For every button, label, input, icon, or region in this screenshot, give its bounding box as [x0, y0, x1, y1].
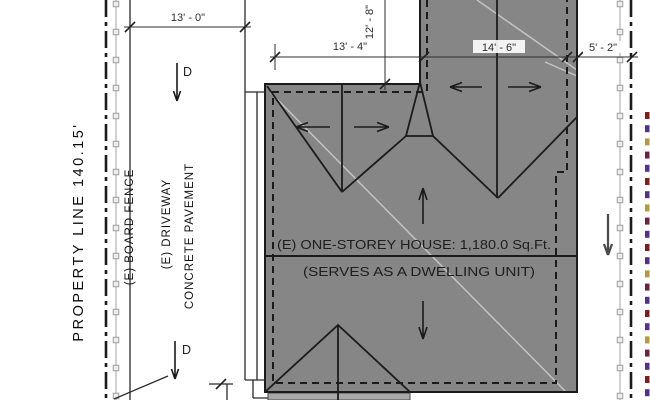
site-plan-viewport: 13' - 0" 13' - 4" 14' - 6" 5' - 2" 12' -… [0, 0, 650, 400]
fence-post [113, 29, 119, 35]
clipped-text-mark [645, 257, 650, 264]
fence-post [113, 1, 119, 7]
fence-post [617, 337, 623, 343]
fence-post [113, 281, 119, 287]
clipped-text-mark [645, 125, 650, 132]
fence-post [617, 169, 623, 175]
dim-left-segment: 13' - 4" [333, 41, 367, 53]
fence-post [617, 113, 623, 119]
clipped-text-mark [645, 310, 650, 317]
fence-post [113, 169, 119, 175]
clipped-text-mark [645, 323, 650, 330]
fence-post [113, 365, 119, 371]
fence-post [617, 57, 623, 63]
fence-post [113, 225, 119, 231]
fence-post [113, 57, 119, 63]
fence-post [113, 85, 119, 91]
clipped-text-mark [645, 336, 650, 343]
clipped-text-mark [645, 218, 650, 225]
clipped-text-mark [645, 231, 650, 238]
fence-post [617, 365, 623, 371]
property-line-left-label: PROPERTY LINE 140.15' [71, 122, 87, 341]
fence-post [617, 253, 623, 259]
clipped-text-mark [645, 297, 650, 304]
dim-driveway-width: 13' - 0" [171, 12, 205, 24]
porch-strip [268, 393, 410, 400]
clipped-text-mark [645, 284, 650, 291]
clipped-text-mark [645, 350, 650, 357]
clipped-text-mark [645, 165, 650, 172]
fence-post [113, 113, 119, 119]
fence-post [617, 29, 623, 35]
fence-post [617, 225, 623, 231]
fence-post [617, 1, 623, 7]
clipped-text-mark [645, 244, 650, 251]
dim-right-segment: 5' - 2" [589, 42, 617, 54]
clipped-text-mark [645, 363, 650, 370]
fence-post [113, 197, 119, 203]
fence-post [617, 281, 623, 287]
fence-post [617, 197, 623, 203]
fence-post [617, 309, 623, 315]
clipped-text-mark [645, 138, 650, 145]
fence-post [113, 337, 119, 343]
clipped-text-mark [645, 152, 650, 159]
driveway-label-line1: (E) DRIVEWAY [161, 179, 173, 270]
fence-post [113, 309, 119, 315]
fence-post [113, 253, 119, 259]
fence-post [617, 85, 623, 91]
clipped-text-mark [645, 270, 650, 277]
clipped-text-mark [645, 191, 650, 198]
clipped-text-mark [645, 178, 650, 185]
clipped-text-mark [645, 389, 650, 396]
site-plan-drawing: 13' - 0" 13' - 4" 14' - 6" 5' - 2" 12' -… [0, 0, 650, 400]
clipped-text-mark [645, 112, 650, 119]
fence-post [113, 141, 119, 147]
drain-label-bottom: D [182, 343, 191, 357]
fence-post [617, 141, 623, 147]
clipped-text-mark [645, 204, 650, 211]
dim-mid-segment: 14' - 6" [482, 42, 516, 54]
fence-post [617, 393, 623, 399]
house-label-line2: (SERVES AS A DWELLING UNIT) [303, 265, 535, 279]
clipped-text-mark [645, 376, 650, 383]
driveway-label-line2: CONCRETE PAVEMENT [184, 163, 196, 309]
drain-label-top: D [183, 65, 192, 79]
dim-upper-offset: 12' - 8" [364, 5, 376, 39]
house-label-line1: (E) ONE-STOREY HOUSE: 1,180.0 Sq.Ft. [277, 238, 551, 252]
board-fence-label: (E) BOARD FENCE [124, 169, 136, 286]
